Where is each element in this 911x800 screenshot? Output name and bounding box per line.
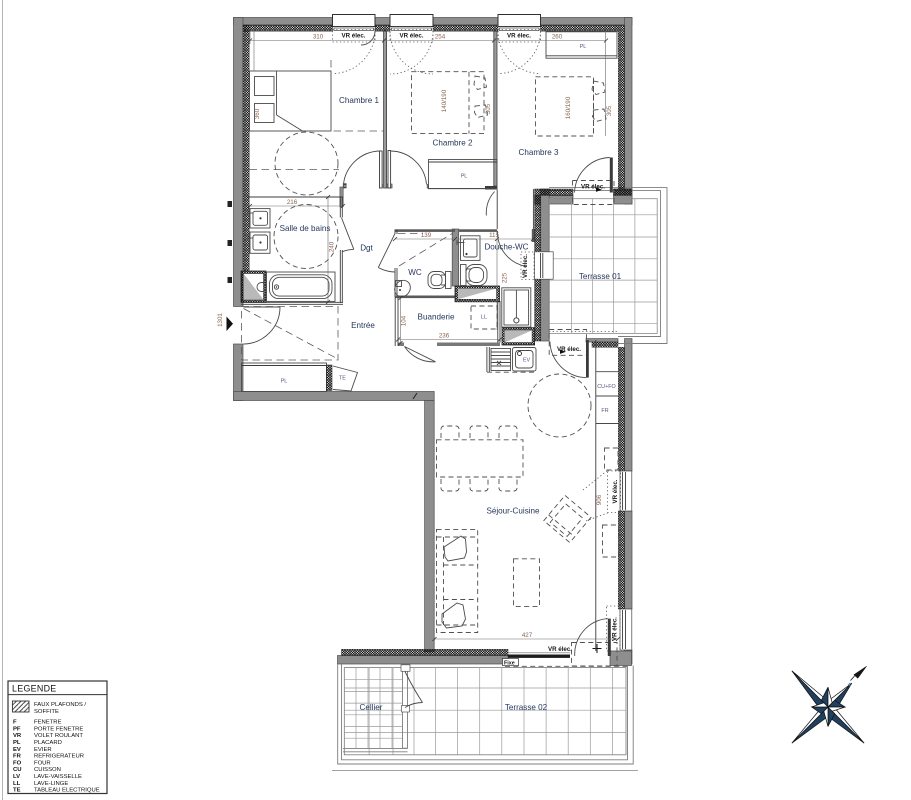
- svg-text:LL: LL: [13, 781, 21, 787]
- svg-text:VR élec.: VR élec.: [548, 646, 572, 653]
- svg-text:115: 115: [489, 232, 499, 239]
- svg-text:TABLEAU ELECTRIQUE: TABLEAU ELECTRIQUE: [34, 788, 100, 794]
- svg-text:VR élec.: VR élec.: [612, 617, 619, 641]
- svg-text:104: 104: [401, 315, 408, 326]
- svg-text:PF: PF: [13, 726, 21, 732]
- svg-text:CU: CU: [13, 767, 22, 773]
- svg-text:PL: PL: [281, 379, 288, 385]
- svg-text:FOUR: FOUR: [34, 760, 51, 766]
- svg-text:Chambre 1: Chambre 1: [339, 96, 380, 105]
- svg-text:260: 260: [552, 34, 563, 41]
- svg-text:WC: WC: [408, 268, 422, 277]
- svg-text:Entrée: Entrée: [351, 321, 375, 330]
- svg-text:139: 139: [421, 232, 432, 239]
- svg-text:VR élec.: VR élec.: [507, 32, 531, 39]
- svg-text:SOFFITE: SOFFITE: [34, 709, 59, 715]
- svg-text:PLACARD: PLACARD: [34, 740, 62, 746]
- svg-text:Dgt: Dgt: [360, 244, 373, 253]
- svg-text:427: 427: [522, 632, 533, 639]
- svg-text:LAVE-VAISSELLE: LAVE-VAISSELLE: [34, 774, 82, 780]
- svg-text:PORTE FENETRE: PORTE FENETRE: [34, 726, 83, 732]
- svg-text:Terrasse 02: Terrasse 02: [505, 703, 548, 712]
- svg-text:PL: PL: [13, 740, 21, 746]
- svg-text:PL: PL: [580, 44, 587, 50]
- svg-text:FO: FO: [13, 760, 22, 766]
- svg-text:906: 906: [596, 494, 603, 505]
- svg-text:Salle de bains: Salle de bains: [280, 224, 331, 233]
- svg-text:Terrasse 01: Terrasse 01: [579, 272, 622, 281]
- svg-text:CU+FO: CU+FO: [597, 384, 615, 390]
- svg-text:LAVE-LINGE: LAVE-LINGE: [34, 781, 68, 787]
- svg-text:254: 254: [435, 34, 446, 41]
- svg-text:310: 310: [313, 34, 324, 41]
- svg-text:Chambre 3: Chambre 3: [518, 148, 559, 157]
- svg-text:Cellier: Cellier: [360, 703, 383, 712]
- svg-text:VR élec.: VR élec.: [341, 32, 365, 39]
- svg-text:REFRIGERATEUR: REFRIGERATEUR: [34, 754, 84, 760]
- svg-text:LL: LL: [481, 315, 487, 321]
- svg-text:FAUX PLAFONDS /: FAUX PLAFONDS /: [34, 702, 86, 708]
- svg-text:305: 305: [485, 103, 492, 114]
- svg-text:236: 236: [439, 333, 450, 340]
- svg-text:225: 225: [502, 272, 509, 283]
- svg-text:360: 360: [254, 108, 261, 119]
- svg-text:305: 305: [606, 105, 613, 116]
- svg-text:160/190: 160/190: [565, 96, 572, 119]
- svg-text:LEGENDE: LEGENDE: [12, 684, 57, 694]
- svg-text:LV: LV: [13, 774, 20, 780]
- svg-text:FR: FR: [13, 754, 22, 760]
- svg-text:Séjour-Cuisine: Séjour-Cuisine: [486, 507, 540, 516]
- svg-text:FR: FR: [601, 408, 608, 414]
- svg-text:VOLET ROULANT: VOLET ROULANT: [34, 733, 83, 739]
- svg-text:Douche-WC: Douche-WC: [484, 242, 528, 251]
- svg-text:F: F: [13, 720, 17, 726]
- svg-text:216: 216: [287, 199, 298, 206]
- svg-text:EV: EV: [13, 747, 21, 753]
- svg-text:TE: TE: [339, 376, 346, 382]
- svg-text:Fixe: Fixe: [504, 660, 515, 666]
- svg-text:EV: EV: [523, 358, 531, 364]
- svg-text:TE: TE: [13, 788, 21, 794]
- svg-text:VR élec.: VR élec.: [612, 479, 619, 503]
- svg-text:PL: PL: [461, 174, 468, 180]
- svg-text:140/190: 140/190: [441, 89, 448, 112]
- svg-text:1301: 1301: [217, 313, 224, 327]
- svg-text:240: 240: [329, 241, 336, 252]
- svg-text:VR: VR: [13, 733, 22, 739]
- svg-text:VR élec.: VR élec.: [399, 32, 423, 39]
- svg-text:CUISSON: CUISSON: [34, 767, 61, 773]
- svg-text:Chambre 2: Chambre 2: [432, 139, 473, 148]
- svg-text:Buanderie: Buanderie: [418, 313, 455, 322]
- svg-text:EVIER: EVIER: [34, 747, 52, 753]
- svg-text:VR élec.: VR élec.: [581, 184, 605, 191]
- svg-text:FENETRE: FENETRE: [34, 720, 62, 726]
